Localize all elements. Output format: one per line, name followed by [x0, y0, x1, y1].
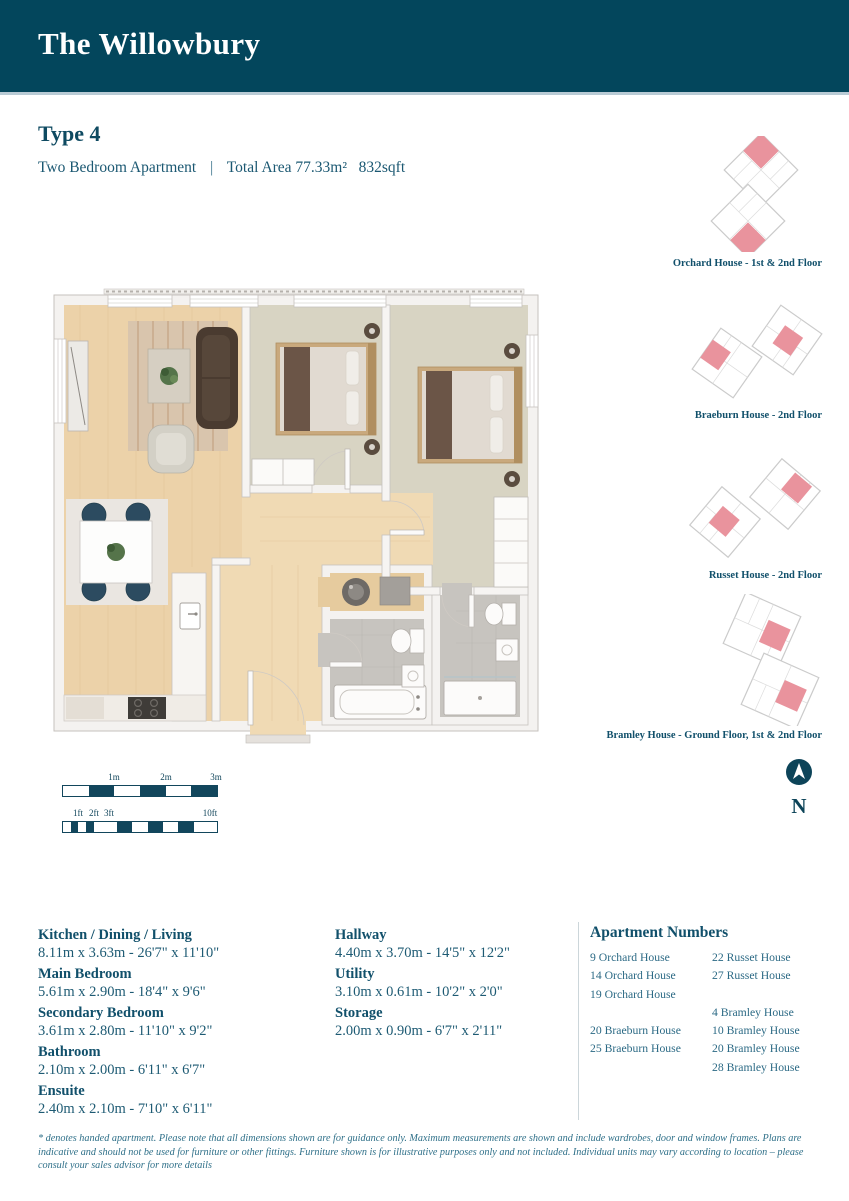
wardrobe — [494, 497, 528, 587]
brochure-page: The Willowbury Type 4 Two Bedroom Apartm… — [0, 0, 849, 1201]
room-item: Storage 2.00m x 0.90m - 6'7" x 2'11" — [335, 1004, 575, 1040]
floor-plan — [50, 287, 546, 745]
armchair — [148, 425, 194, 473]
locator-label-orchard: Orchard House - 1st & 2nd Floor — [560, 258, 822, 269]
meter-scale-bar — [62, 785, 218, 797]
apartment-numbers-col1: 9 Orchard House 14 Orchard House 19 Orch… — [590, 951, 712, 1079]
page-title: The Willowbury — [38, 26, 260, 62]
room-item: Hallway 4.40m x 3.70m - 14'5" x 12'2" — [335, 926, 575, 962]
utility-appliance — [380, 577, 410, 605]
north-label: N — [779, 795, 819, 817]
bathtub — [334, 685, 426, 719]
scale-label-3ft: 3ft — [104, 808, 114, 818]
apartment-entry — [590, 1061, 712, 1079]
scale-label-10ft: 10ft — [203, 808, 218, 818]
room-item: Secondary Bedroom 3.61m x 2.80m - 11'10"… — [38, 1004, 328, 1040]
apartment-type-title: Type 4 — [38, 121, 101, 147]
main-bed — [418, 367, 522, 463]
apartment-entry: 9 Orchard House — [590, 951, 712, 969]
locator-label-bramley: Bramley House - Ground Floor, 1st & 2nd … — [560, 730, 822, 741]
ensuite-sink — [496, 639, 518, 661]
locator-diagram-russet-house — [675, 452, 835, 564]
hob — [128, 697, 166, 719]
room-dimensions-middle: Hallway 4.40m x 3.70m - 14'5" x 12'2" Ut… — [335, 926, 575, 1043]
ensuite-toilet — [485, 603, 516, 625]
room-item: Utility 3.10m x 0.61m - 10'2" x 2'0" — [335, 965, 575, 1001]
hall-corridor-floor — [220, 565, 322, 721]
apartment-entry: 20 Bramley House — [712, 1042, 830, 1060]
apartment-numbers-col2: 22 Russet House 27 Russet House 4 Bramle… — [712, 951, 830, 1079]
shower — [444, 677, 516, 715]
secondary-bed — [276, 343, 376, 435]
total-sqft: 832sqft — [359, 159, 406, 176]
scale-label-2m: 2m — [160, 772, 172, 782]
coffee-table — [148, 349, 190, 403]
room-item: Main Bedroom 5.61m x 2.90m - 18'4" x 9'6… — [38, 965, 328, 1001]
scale-label-1m: 1m — [108, 772, 120, 782]
apartment-entry — [712, 988, 830, 1006]
apartment-entry: 10 Bramley House — [712, 1024, 830, 1042]
subtitle-separator: | — [210, 159, 213, 177]
compass: N — [779, 757, 819, 815]
washing-machine — [342, 578, 370, 606]
apartment-entry: 14 Orchard House — [590, 969, 712, 987]
locator-label-russet: Russet House - 2nd Floor — [560, 570, 822, 581]
feet-scale-labels: 1ft 2ft 3ft 10ft — [62, 808, 218, 819]
disclaimer-text: * denotes handed apartment. Please note … — [38, 1132, 810, 1173]
apartment-entry: 28 Bramley House — [712, 1061, 830, 1079]
room-item: Ensuite 2.40m x 2.10m - 7'10" x 6'11" — [38, 1082, 328, 1118]
scale-label-3m: 3m — [210, 772, 222, 782]
total-area: Total Area 77.33m² — [227, 159, 347, 176]
storage-closet — [252, 459, 314, 485]
apartment-entry: 27 Russet House — [712, 969, 830, 987]
apartment-entry: 20 Braeburn House — [590, 1024, 712, 1042]
scale-label-1ft: 1ft — [73, 808, 83, 818]
header: The Willowbury — [0, 0, 849, 95]
bathroom-sink — [402, 665, 424, 687]
locator-diagram-braeburn-house — [675, 300, 835, 406]
apartment-numbers-heading: Apartment Numbers — [590, 924, 830, 942]
apartment-entry: 22 Russet House — [712, 951, 830, 969]
locator-label-braeburn: Braeburn House - 2nd Floor — [560, 410, 822, 421]
north-arrow-icon — [779, 757, 819, 789]
scale-label-2ft: 2ft — [89, 808, 99, 818]
apartment-category: Two Bedroom Apartment — [38, 159, 196, 176]
scale-bars: 1m 2m 3m 1ft 2ft 3ft 10ft — [62, 772, 218, 838]
console-table — [68, 341, 88, 431]
apartment-subtitle: Two Bedroom Apartment | Total Area 77.33… — [38, 159, 405, 177]
apartment-entry: 25 Braeburn House — [590, 1042, 712, 1060]
apartment-entry: 4 Bramley House — [712, 1006, 830, 1024]
ensuite-door-opening — [442, 583, 472, 597]
apartment-numbers: Apartment Numbers 9 Orchard House 14 Orc… — [590, 924, 830, 1079]
locator-diagram-bramley-house — [660, 594, 845, 726]
apartment-entry — [590, 1006, 712, 1024]
feet-scale-bar — [62, 821, 218, 833]
room-dimensions-left: Kitchen / Dining / Living 8.11m x 3.63m … — [38, 926, 328, 1121]
entrance-opening — [250, 721, 306, 735]
section-divider — [578, 922, 579, 1120]
utility-door-opening — [318, 577, 332, 607]
room-item: Bathroom 2.10m x 2.00m - 6'11" x 6'7" — [38, 1043, 328, 1079]
dining-table — [80, 521, 152, 583]
apartment-entry: 19 Orchard House — [590, 988, 712, 1006]
meter-scale-labels: 1m 2m 3m — [62, 772, 218, 783]
entrance-threshold — [246, 735, 310, 743]
sofa — [196, 327, 238, 429]
bathroom-toilet — [391, 629, 424, 653]
locator-diagram-orchard-house — [675, 136, 835, 252]
room-item: Kitchen / Dining / Living 8.11m x 3.63m … — [38, 926, 328, 962]
